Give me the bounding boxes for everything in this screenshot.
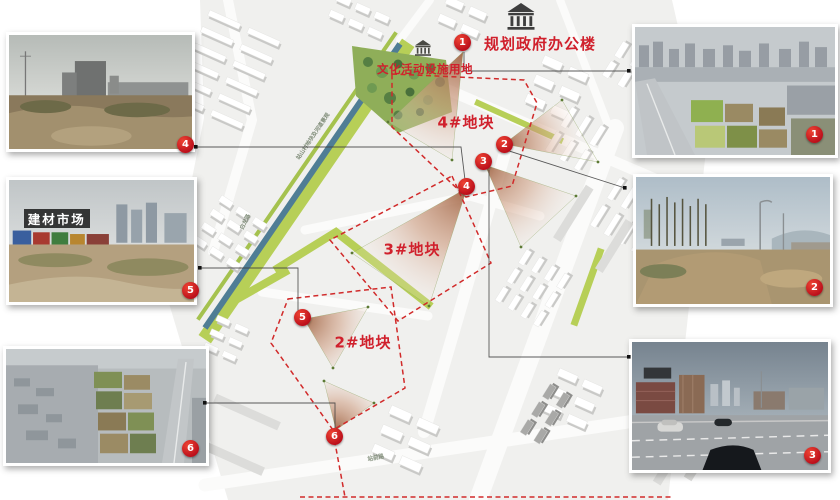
plot-3-label: 3#地块 bbox=[383, 239, 440, 260]
photo-3-scene bbox=[632, 342, 828, 470]
culture-facility-label: 文化活动设施用地 bbox=[377, 61, 473, 77]
culture-facility-icon bbox=[414, 40, 432, 56]
map-marker-2: 2 bbox=[496, 136, 513, 153]
photo-marker-5: 5 bbox=[182, 282, 199, 299]
photo-marker-6: 6 bbox=[182, 440, 199, 457]
photo-2-scene bbox=[636, 177, 830, 304]
photo-5-scene bbox=[9, 180, 194, 302]
site-photo-6 bbox=[3, 346, 209, 466]
government-building-icon bbox=[506, 3, 536, 30]
site-photo-4 bbox=[6, 32, 195, 152]
photo-marker-2: 2 bbox=[806, 279, 823, 296]
map-marker-5: 5 bbox=[294, 309, 311, 326]
photo-1-scene bbox=[635, 27, 835, 155]
map-marker-4: 4 bbox=[458, 178, 475, 195]
photo-6-scene bbox=[6, 349, 206, 463]
plot-4-label: 4#地块 bbox=[437, 112, 494, 133]
photo-marker-1: 1 bbox=[806, 126, 823, 143]
map-marker-1: 1 bbox=[454, 34, 471, 51]
map-marker-3: 3 bbox=[475, 153, 492, 170]
site-photo-2 bbox=[633, 174, 833, 307]
photo-marker-3: 3 bbox=[804, 447, 821, 464]
photo-4-scene bbox=[9, 35, 192, 149]
site-photo-5: 建材市场 bbox=[6, 177, 197, 305]
planning-site-analysis-board: 站山村地块及河道景观 白龙路 站前路 bbox=[0, 0, 840, 500]
gov-office-label: 规划政府办公楼 bbox=[484, 33, 596, 54]
photo-5-caption: 建材市场 bbox=[24, 209, 90, 228]
plot-2-label: 2#地块 bbox=[334, 332, 391, 353]
map-marker-6: 6 bbox=[326, 428, 343, 445]
photo-marker-4: 4 bbox=[177, 136, 194, 153]
site-photo-3 bbox=[629, 339, 831, 473]
